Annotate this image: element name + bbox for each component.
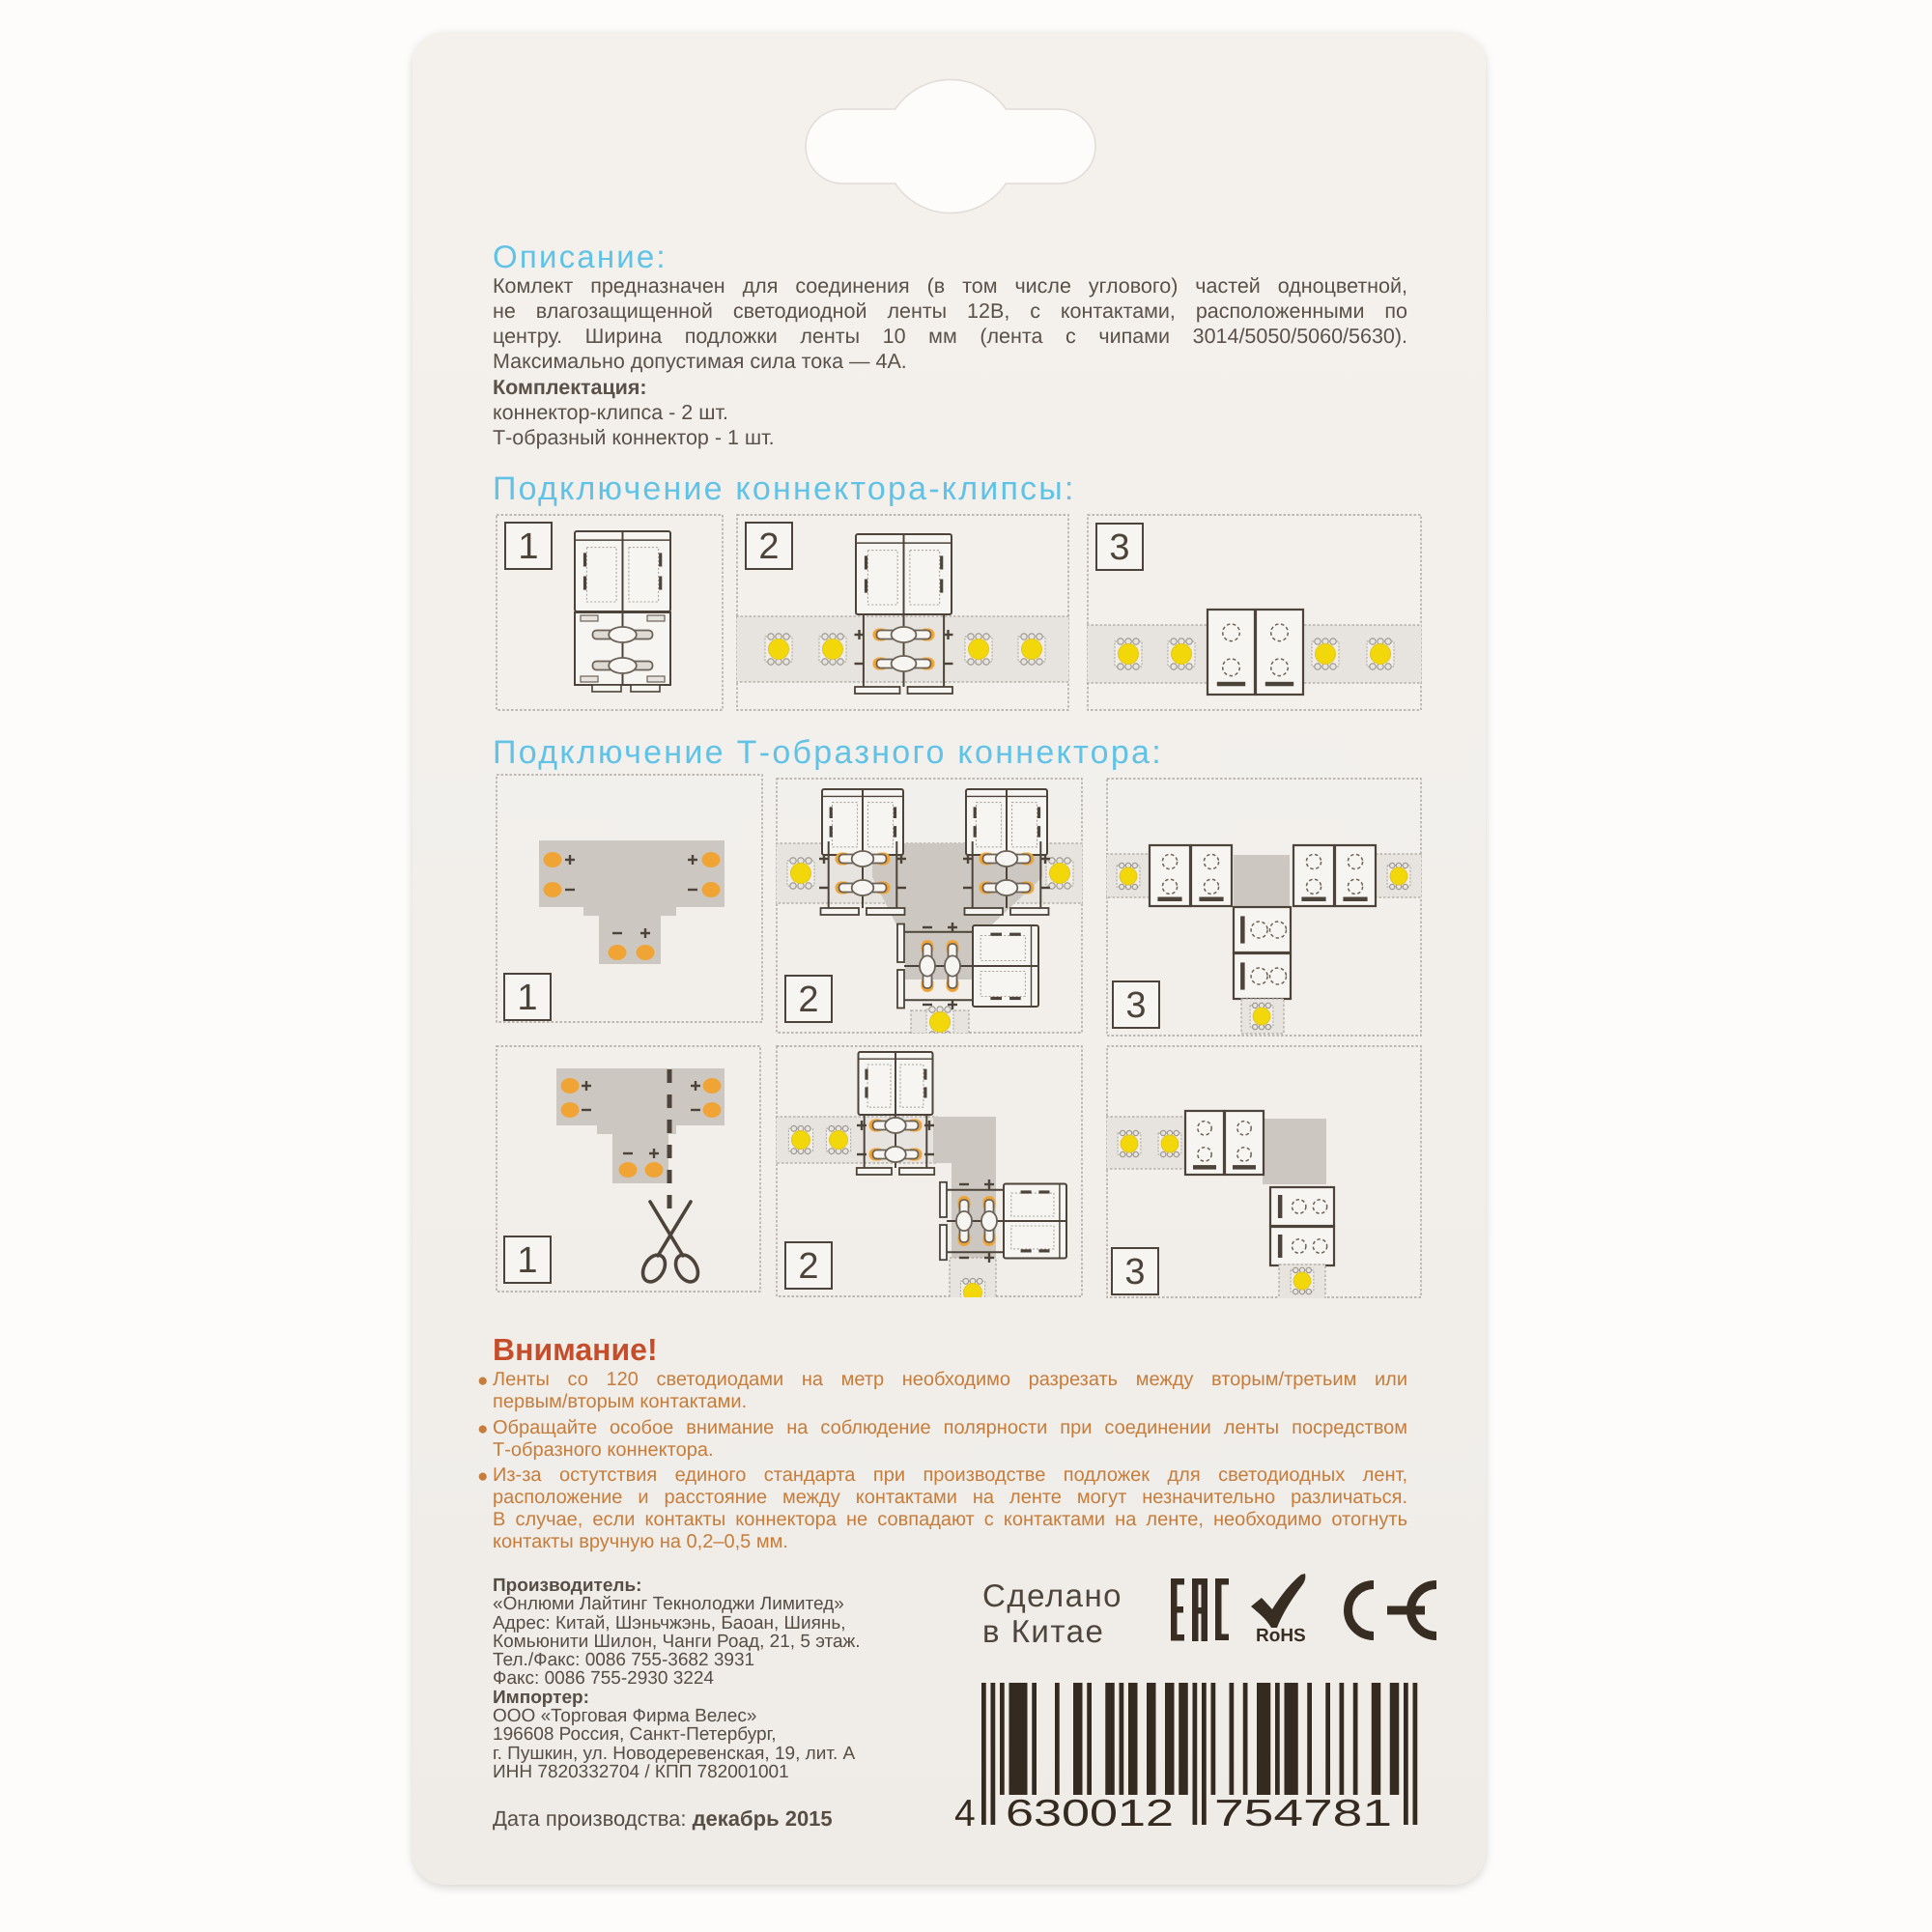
svg-text:3: 3	[1109, 527, 1129, 568]
svg-text:754781: 754781	[1214, 1793, 1392, 1834]
svg-text:1: 1	[517, 978, 537, 1018]
svg-text:1: 1	[517, 1240, 537, 1281]
svg-text:630012: 630012	[1006, 1793, 1174, 1834]
svg-text:2: 2	[758, 526, 779, 567]
svg-text:3: 3	[1125, 985, 1146, 1026]
svg-text:2: 2	[798, 1246, 818, 1287]
svg-text:4: 4	[954, 1793, 976, 1834]
svg-text:3: 3	[1124, 1252, 1145, 1293]
svg-text:1: 1	[518, 526, 538, 567]
svg-text:2: 2	[798, 980, 818, 1020]
svg-text:RoHS: RoHS	[1256, 1626, 1306, 1645]
